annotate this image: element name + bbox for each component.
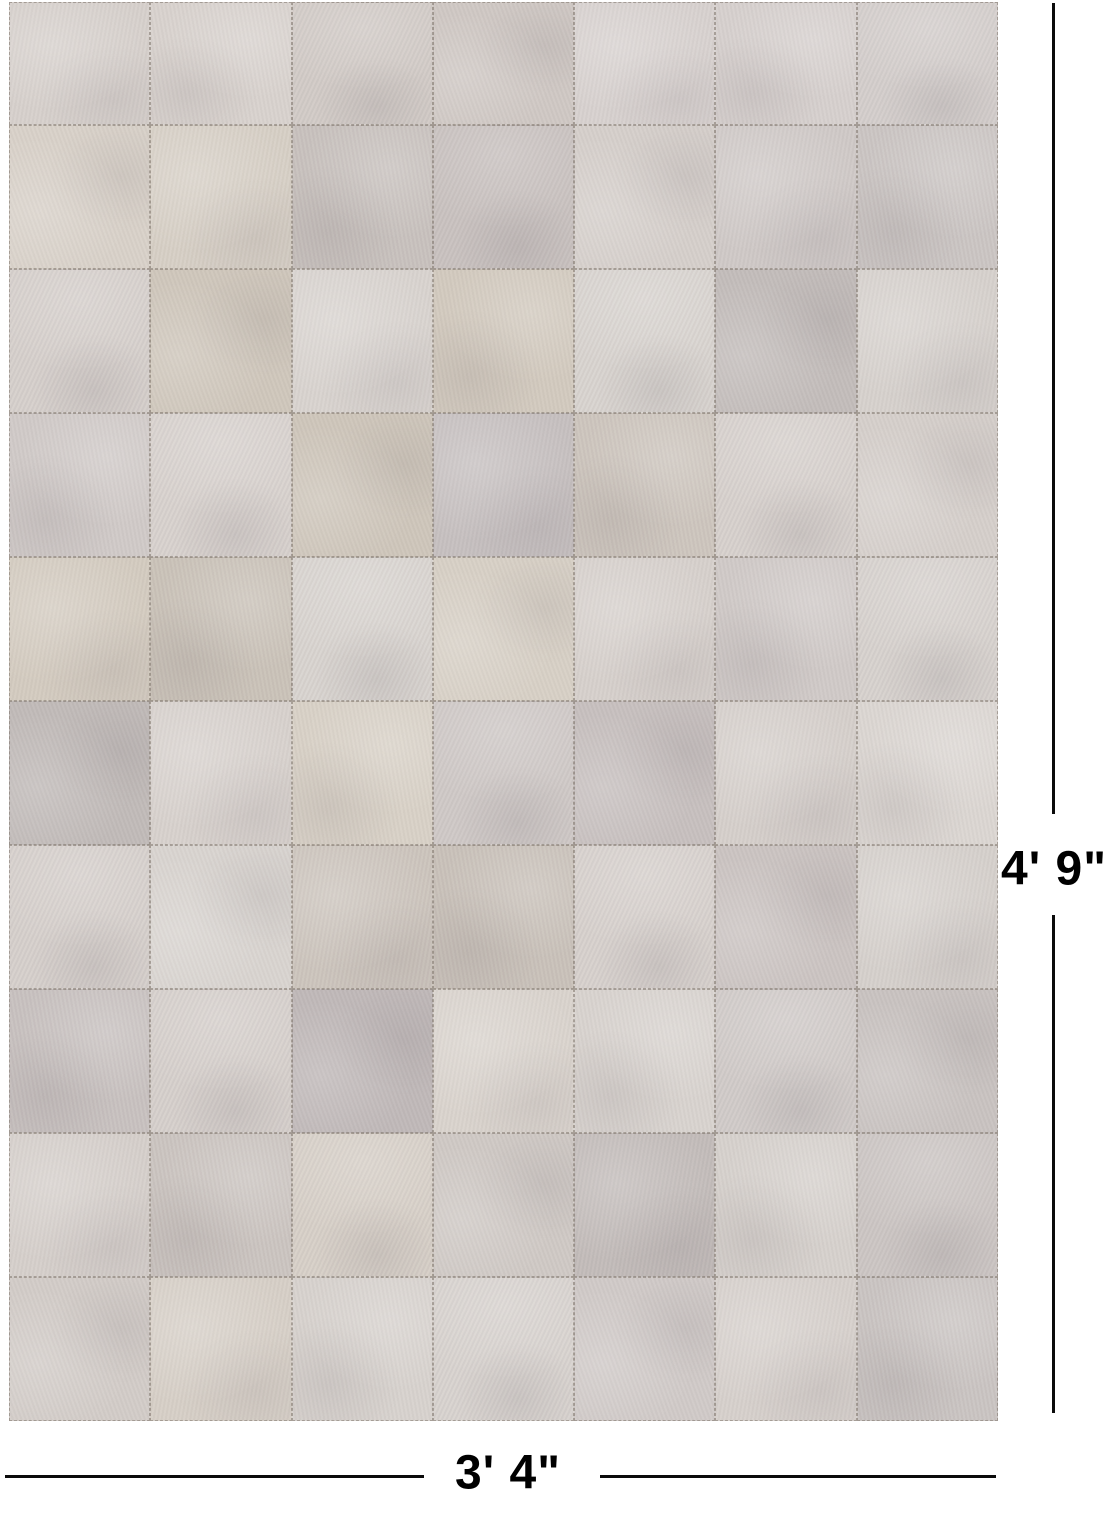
rug-patch	[857, 701, 998, 845]
rug-patch	[433, 1133, 574, 1277]
rug-patch	[433, 989, 574, 1133]
rug-patch	[857, 989, 998, 1133]
rug-patch	[857, 413, 998, 557]
rug-patch	[715, 1277, 856, 1421]
rug-patch	[574, 557, 715, 701]
height-dimension-line-top-segment	[1052, 3, 1055, 814]
rug-patch	[857, 2, 998, 125]
rug-patch	[715, 701, 856, 845]
rug-patch	[150, 1277, 291, 1421]
rug-patch	[715, 989, 856, 1133]
rug-patch	[9, 1133, 150, 1277]
rug-patch	[150, 413, 291, 557]
rug-patch	[292, 989, 433, 1133]
rug-patch	[715, 845, 856, 989]
rug-patch	[857, 845, 998, 989]
rug-image	[9, 2, 998, 1421]
rug-patch	[150, 701, 291, 845]
rug-patch	[9, 2, 150, 125]
rug-patch	[9, 413, 150, 557]
rug-patch	[857, 557, 998, 701]
rug-patch	[715, 413, 856, 557]
rug-patch	[150, 1133, 291, 1277]
height-dimension-line-bottom-segment	[1052, 915, 1055, 1413]
rug-patch	[574, 413, 715, 557]
rug-patch	[292, 701, 433, 845]
rug-patch	[150, 989, 291, 1133]
rug-patch	[433, 701, 574, 845]
rug-patch	[292, 125, 433, 269]
rug-patch	[292, 1133, 433, 1277]
rug-patch	[574, 1277, 715, 1421]
rug-patch	[9, 1277, 150, 1421]
rug-patch	[150, 845, 291, 989]
rug-patch	[433, 557, 574, 701]
rug-patch	[574, 989, 715, 1133]
rug-patch	[715, 125, 856, 269]
rug-patch	[150, 269, 291, 413]
width-dimension-line-right-segment	[600, 1475, 996, 1478]
rug-patch	[9, 557, 150, 701]
rug-patch	[150, 125, 291, 269]
rug-patch	[433, 269, 574, 413]
rug-patch	[9, 845, 150, 989]
rug-patch	[433, 845, 574, 989]
rug-patch	[857, 125, 998, 269]
rug-patch	[574, 701, 715, 845]
rug-patch	[9, 269, 150, 413]
rug-patch	[150, 557, 291, 701]
rug-patch	[433, 1277, 574, 1421]
width-dimension-line-left-segment	[5, 1475, 424, 1478]
product-dimension-image: 4' 9" 3' 4"	[0, 0, 1110, 1526]
rug-patch	[715, 269, 856, 413]
width-dimension-label: 3' 4"	[455, 1446, 561, 1501]
rug-patch	[574, 845, 715, 989]
rug-patch	[292, 557, 433, 701]
rug-patch	[292, 413, 433, 557]
rug-patch	[574, 2, 715, 125]
rug-patch	[292, 2, 433, 125]
rug-patch	[433, 2, 574, 125]
rug-patch	[574, 125, 715, 269]
rug-patch	[857, 269, 998, 413]
rug-patch	[715, 557, 856, 701]
rug-patch	[574, 269, 715, 413]
rug-patch	[292, 845, 433, 989]
rug-patch	[857, 1277, 998, 1421]
rug-patch	[9, 701, 150, 845]
rug-patch	[433, 125, 574, 269]
rug-patch	[9, 989, 150, 1133]
rug-patch	[857, 1133, 998, 1277]
rug-patch	[292, 269, 433, 413]
rug-patch	[292, 1277, 433, 1421]
rug-patch	[715, 1133, 856, 1277]
rug-patch	[574, 1133, 715, 1277]
rug-patch	[9, 125, 150, 269]
height-dimension-label: 4' 9"	[1001, 842, 1107, 897]
rug-patch	[150, 2, 291, 125]
rug-patch	[715, 2, 856, 125]
rug-patch	[433, 413, 574, 557]
